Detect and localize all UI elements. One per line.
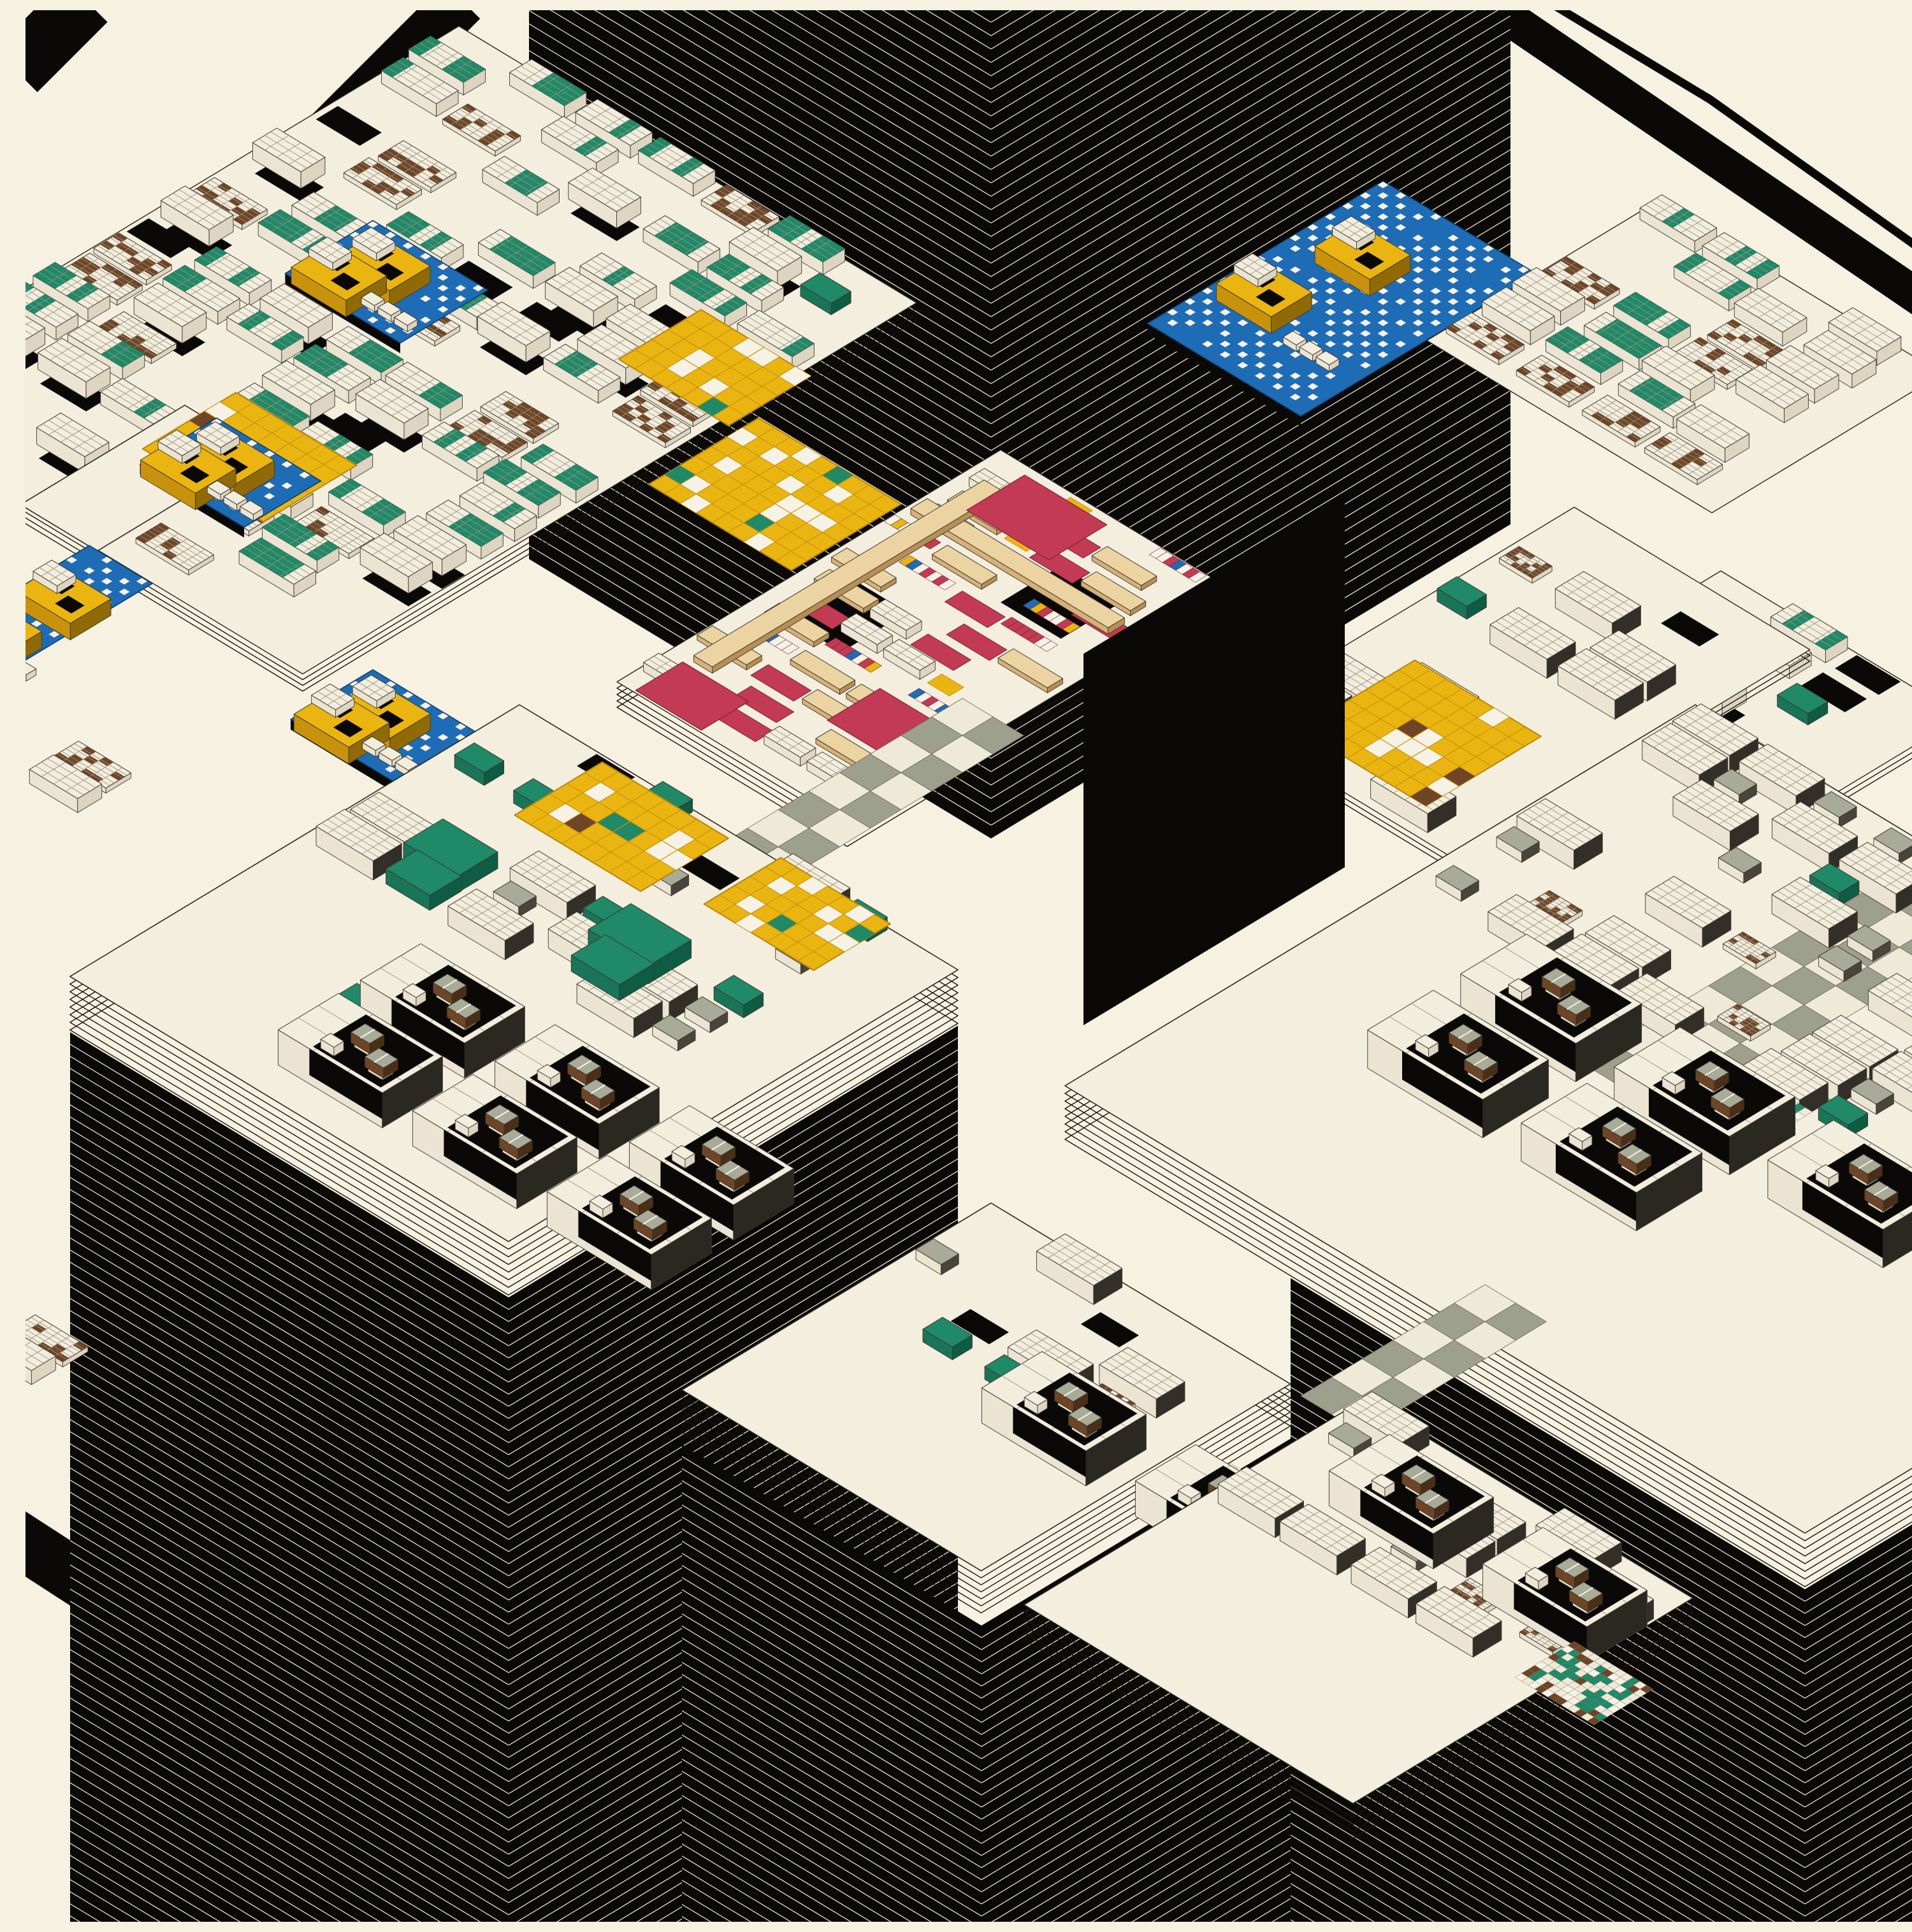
artwork-canvas [25,10,1912,1922]
isometric-city-artwork [25,10,1912,1922]
